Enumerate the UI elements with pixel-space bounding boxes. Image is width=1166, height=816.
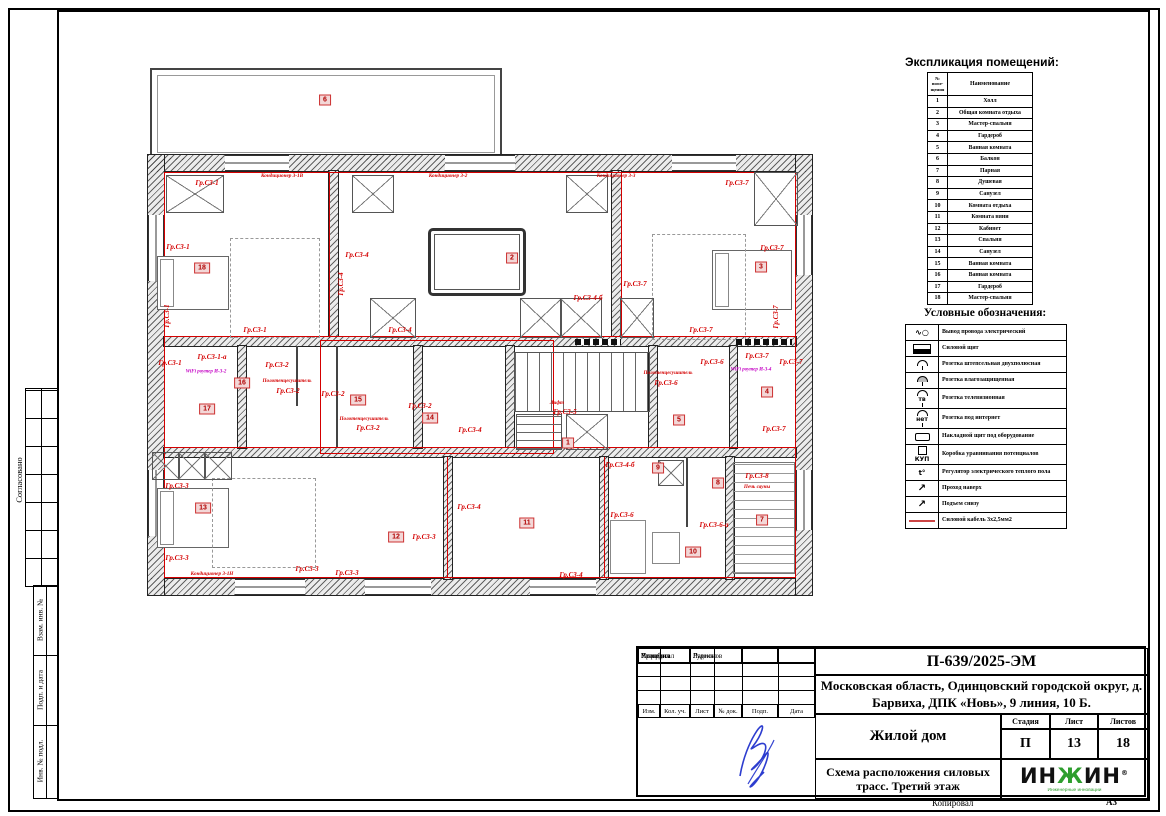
group-label: Гр.С3-3 bbox=[412, 533, 435, 541]
legend-label: Проход наверх bbox=[939, 481, 1066, 496]
room-name-cell: Общая комната отдыха bbox=[948, 108, 1032, 119]
group-label: Гр.С3-3 bbox=[165, 554, 188, 562]
group-label: WiFi роутер И-3-4 bbox=[731, 368, 772, 373]
room-name-cell: Гардероб bbox=[948, 131, 1032, 142]
stamp-column-header: Лист bbox=[690, 704, 714, 718]
table-row: 4 Гардероб bbox=[928, 130, 1032, 142]
room-number-cell: 12 bbox=[928, 224, 948, 235]
room-number: 16 bbox=[234, 378, 250, 389]
table-row: 2 Общая комната отдыха bbox=[928, 107, 1032, 119]
window bbox=[445, 155, 515, 171]
logo-text: ИНЖИН® bbox=[1020, 766, 1129, 787]
cable-trace bbox=[164, 577, 796, 578]
table-row: 1 Холл bbox=[928, 95, 1032, 107]
window bbox=[365, 579, 431, 595]
legend-symbol-icon: КУП bbox=[906, 445, 939, 464]
table-row: 3 Мастер-спальня bbox=[928, 118, 1032, 130]
company-logo: ИНЖИН® Инженерные инновации bbox=[1001, 759, 1148, 799]
role-cell bbox=[638, 648, 690, 664]
legend-title: Условные обозначения: bbox=[905, 307, 1065, 319]
room-number-cell: 16 bbox=[928, 270, 948, 281]
legend-row: тв Розетка телевизионная bbox=[906, 388, 1066, 408]
group-label: Гр.С3-5 bbox=[553, 408, 576, 416]
sheets-header: Листов bbox=[1098, 714, 1148, 729]
group-label: Гр.С3-3 bbox=[335, 569, 358, 577]
project-address: Московская область, Одинцовский городско… bbox=[815, 675, 1148, 714]
legend-row: ↗ Подъем снизу bbox=[906, 496, 1066, 512]
legend-row: Силовой щит bbox=[906, 340, 1066, 356]
room-name-cell: Спальня bbox=[948, 235, 1032, 246]
cable-trace bbox=[329, 172, 330, 336]
group-label: Гр.С3-6 bbox=[610, 511, 633, 519]
group-label: Гр.С3-1 bbox=[158, 359, 181, 367]
wardrobe bbox=[560, 298, 602, 338]
cable-trace bbox=[164, 172, 796, 173]
legend-label: Розетка влагозащищенная bbox=[939, 373, 1066, 388]
drawing-sheet: { "left_margin": { "agreed": "Согласован… bbox=[0, 0, 1166, 816]
wall bbox=[444, 457, 452, 579]
group-label: Гр.С3-2 bbox=[265, 361, 288, 369]
cable-trace bbox=[447, 457, 448, 577]
group-label: Гр.С3-6-а bbox=[699, 521, 728, 529]
room-number: 6 bbox=[319, 95, 331, 106]
room-number-cell: 18 bbox=[928, 293, 948, 304]
room-number-cell: 14 bbox=[928, 247, 948, 258]
legend-row: КУП Коробка уравнивания потенциалов bbox=[906, 444, 1066, 464]
legend-label: Розетка под интернет bbox=[939, 409, 1066, 428]
room-name-cell: Парная bbox=[948, 166, 1032, 177]
group-label: Гр.С3-4-б bbox=[605, 461, 634, 469]
group-label: Гр.С3-6 bbox=[700, 358, 723, 366]
group-label: Гр.С3-1 bbox=[166, 243, 189, 251]
explication-title: Экспликация помещений: bbox=[905, 55, 1059, 69]
divider bbox=[33, 655, 57, 656]
group-label: Полотенцесушитель bbox=[263, 378, 312, 384]
room-name-cell: Холл bbox=[948, 96, 1032, 107]
wall bbox=[238, 346, 246, 448]
table-row: 13 Спальня bbox=[928, 234, 1032, 246]
room-name-cell: Ванная комната bbox=[948, 258, 1032, 269]
object-name: Жилой дом bbox=[815, 714, 1001, 759]
legend-symbol-icon: тв bbox=[906, 389, 939, 408]
group-label: Полотенцесушитель bbox=[644, 370, 693, 376]
room-number-cell: 6 bbox=[928, 154, 948, 165]
room-number: 15 bbox=[350, 395, 366, 406]
stairs bbox=[516, 414, 562, 450]
legend-symbol-icon bbox=[906, 357, 939, 372]
logo-subtitle: Инженерные инновации bbox=[1048, 788, 1102, 793]
legend-label: Накладной щит под оборудование bbox=[939, 429, 1066, 444]
table-row: 6 Балкон bbox=[928, 153, 1032, 165]
legend-symbol-icon: ∿○ bbox=[906, 325, 939, 340]
signature-cell bbox=[742, 648, 778, 664]
legend-label: Коробка уравнивания потенциалов bbox=[939, 445, 1066, 464]
window bbox=[672, 155, 736, 171]
room-number: 13 bbox=[195, 503, 211, 514]
balcony-outline bbox=[150, 68, 502, 160]
group-label: Гр.С3-4 bbox=[457, 503, 480, 511]
drawing-name: Схема расположения силовых трасс. Третий… bbox=[815, 759, 1001, 799]
legend-symbol-icon: ↗ bbox=[906, 497, 939, 512]
group-label: Гр.С3-4 bbox=[559, 571, 582, 579]
legend-label: Регулятор электрического теплого пола bbox=[939, 465, 1066, 480]
legend-rows: ∿○ Вывод провода электрический Силовой щ… bbox=[906, 325, 1066, 528]
group-label: Лифт bbox=[550, 400, 564, 406]
room-number-cell: 8 bbox=[928, 177, 948, 188]
table-row: 11 Комната няни bbox=[928, 211, 1032, 223]
wardrobe bbox=[204, 452, 232, 480]
left-margin-table bbox=[25, 388, 59, 587]
group-label: Полотенцесушитель bbox=[340, 416, 389, 422]
wardrobe bbox=[152, 452, 180, 480]
signature bbox=[726, 710, 790, 794]
room-name-cell: Санузел bbox=[948, 189, 1032, 200]
window bbox=[796, 470, 812, 530]
wall bbox=[730, 346, 737, 448]
room-number: 1 bbox=[562, 438, 574, 449]
room-number: 7 bbox=[756, 515, 768, 526]
stamp-column-header: Кол. уч. bbox=[660, 704, 690, 718]
table bbox=[652, 532, 680, 564]
room-number: 12 bbox=[388, 532, 404, 543]
group-label: WiFi роутер И-3-2 bbox=[186, 370, 227, 375]
group-label: Гр.С3-3 bbox=[295, 565, 318, 573]
legend-row: нет Розетка под интернет bbox=[906, 408, 1066, 428]
group-label: Гр.С3-1-а bbox=[197, 353, 226, 361]
partition bbox=[296, 346, 298, 406]
group-label: Гр.С3-4 bbox=[337, 272, 345, 295]
table-row: 17 Гардероб bbox=[928, 281, 1032, 293]
legend-row: ∿○ Вывод провода электрический bbox=[906, 325, 1066, 340]
table-row: 15 Ванная комната bbox=[928, 257, 1032, 269]
room-name-cell: Ванная комната bbox=[948, 270, 1032, 281]
room-number-cell: 1 bbox=[928, 96, 948, 107]
group-label: Гр.С3-7 bbox=[745, 352, 768, 360]
legend-symbol-icon bbox=[906, 341, 939, 356]
table-row: 5 Ванная комната bbox=[928, 141, 1032, 153]
vzam-inv-label: Взам. инв. № bbox=[36, 599, 45, 641]
name-cell bbox=[690, 648, 742, 664]
format-label: А3 bbox=[1106, 797, 1117, 807]
room-number-cell: 13 bbox=[928, 235, 948, 246]
room-number: 5 bbox=[673, 415, 685, 426]
group-label: Гр.С3-7 bbox=[725, 179, 748, 187]
legend-row: Силовой кабель 3х2,5мм2 bbox=[906, 512, 1066, 528]
group-label: Гр.С3-7 bbox=[762, 425, 785, 433]
date-cell bbox=[778, 648, 815, 664]
room-name-cell: Кабинет bbox=[948, 224, 1032, 235]
group-label: Гр.С3-6 bbox=[654, 379, 677, 387]
room-number-cell: 3 bbox=[928, 119, 948, 130]
room-number-cell: 2 bbox=[928, 108, 948, 119]
wardrobe bbox=[620, 298, 654, 338]
legend-label: Подъем снизу bbox=[939, 497, 1066, 512]
room-number-cell: 9 bbox=[928, 189, 948, 200]
sheets-value: 18 bbox=[1098, 729, 1148, 759]
rug bbox=[652, 234, 746, 340]
room-name-cell: Гардероб bbox=[948, 282, 1032, 293]
group-label: Гр.С3-8 bbox=[745, 472, 768, 480]
agreed-label: Согласовано bbox=[14, 457, 24, 502]
group-label: Кондиционер 3-2 bbox=[429, 173, 468, 179]
table-row: 14 Санузел bbox=[928, 246, 1032, 258]
legend-label: Розетка штепсельная двухполюсная bbox=[939, 357, 1066, 372]
electric-panel bbox=[575, 339, 621, 345]
group-label: Гр.С3-4-б bbox=[573, 294, 602, 302]
room-number-cell: 4 bbox=[928, 131, 948, 142]
room-number: 14 bbox=[422, 413, 438, 424]
inv-podl-label: Инв. № подл. bbox=[36, 740, 45, 783]
group-label: Печь сауны bbox=[744, 484, 770, 490]
partition bbox=[686, 457, 688, 527]
group-label: Гр.С3-7 bbox=[760, 244, 783, 252]
legend-symbol-icon: ↗ bbox=[906, 481, 939, 496]
copied-label: Копировал bbox=[932, 798, 973, 808]
window bbox=[530, 579, 596, 595]
wall bbox=[329, 171, 338, 337]
wardrobe bbox=[178, 452, 206, 480]
table-row: 7 Парная bbox=[928, 165, 1032, 177]
bed bbox=[157, 256, 229, 310]
rug bbox=[212, 478, 316, 568]
group-label: Гр.С3-7 bbox=[772, 305, 780, 328]
room-number: 8 bbox=[712, 478, 724, 489]
rug bbox=[230, 238, 320, 338]
table-row: 18 Мастер-спальня bbox=[928, 292, 1032, 304]
legend-symbol-icon: t° bbox=[906, 465, 939, 480]
group-label: Гр.С3-4 bbox=[345, 251, 368, 259]
table-row: 10 Комната отдыха bbox=[928, 199, 1032, 211]
wardrobe bbox=[352, 175, 394, 213]
legend-table: ∿○ Вывод провода электрический Силовой щ… bbox=[905, 324, 1067, 529]
wardrobe bbox=[566, 175, 608, 213]
group-label: Кондиционер 3-1Н bbox=[191, 571, 234, 577]
room-number: 10 bbox=[685, 547, 701, 558]
room-name-cell: Комната няни bbox=[948, 212, 1032, 223]
stamp-role-row bbox=[638, 648, 815, 664]
group-label: Кондиционер 3-3 bbox=[597, 173, 636, 179]
divider bbox=[33, 725, 57, 726]
legend-symbol-icon bbox=[906, 513, 939, 528]
room-name-cell: Ванная комната bbox=[948, 142, 1032, 153]
room-name-cell: Балкон bbox=[948, 154, 1032, 165]
podp-data-label: Подп. и дата bbox=[36, 670, 45, 710]
legend-row: Накладной щит под оборудование bbox=[906, 428, 1066, 444]
group-label: Гр.С3-7 bbox=[689, 326, 712, 334]
legend-label: Розетка телевизионная bbox=[939, 389, 1066, 408]
stairs bbox=[514, 352, 650, 412]
group-label: Гр.С3-1 bbox=[243, 326, 266, 334]
group-label: Гр.С3-1 bbox=[163, 304, 171, 327]
window bbox=[235, 579, 305, 595]
document-number: П-639/2025-ЭМ bbox=[815, 648, 1148, 675]
group-label: Гр.С3-2 bbox=[356, 424, 379, 432]
room-name-cell: Мастер-спальня bbox=[948, 119, 1032, 130]
group-label: Гр.С3-4 bbox=[388, 326, 411, 334]
legend-label: Вывод провода электрический bbox=[939, 325, 1066, 340]
table-row: 12 Кабинет bbox=[928, 223, 1032, 235]
group-label: Гр.С3-7 bbox=[779, 358, 802, 366]
legend-symbol-icon bbox=[906, 373, 939, 388]
title-block: Изм.Кол. уч.Лист№ док.Подп.Дата Разработ… bbox=[636, 646, 1146, 797]
legend-symbol-icon bbox=[906, 429, 939, 444]
room-name-cell: Комната отдыха bbox=[948, 200, 1032, 211]
room-name-cell: Санузел bbox=[948, 247, 1032, 258]
stamp-column-header: Изм. bbox=[638, 704, 660, 718]
cable-trace bbox=[795, 172, 796, 577]
legend-row: Розетка штепсельная двухполюсная bbox=[906, 356, 1066, 372]
room-number-cell: 10 bbox=[928, 200, 948, 211]
legend-row: t° Регулятор электрического теплого пола bbox=[906, 464, 1066, 480]
explication-header: № поме- щения Наименование bbox=[928, 73, 1032, 95]
legend-symbol-icon: нет bbox=[906, 409, 939, 428]
legend-label: Силовой щит bbox=[939, 341, 1066, 356]
window bbox=[796, 215, 812, 275]
col-name-header: Наименование bbox=[948, 73, 1032, 95]
group-label: Гр.С3-2 bbox=[276, 387, 299, 395]
sheet-header: Лист bbox=[1050, 714, 1098, 729]
room-name-cell: Душевая bbox=[948, 177, 1032, 188]
room-number-cell: 7 bbox=[928, 166, 948, 177]
group-label: Гр.С3-2 bbox=[321, 390, 344, 398]
wardrobe bbox=[520, 298, 562, 338]
explication-rows: 1 Холл 2 Общая комната отдыха 3 Мастер-с… bbox=[928, 95, 1032, 304]
stage-value: П bbox=[1001, 729, 1050, 759]
room-number: 9 bbox=[652, 463, 664, 474]
wardrobe bbox=[754, 172, 798, 226]
group-label: Гр.С3-7 bbox=[623, 280, 646, 288]
room-number-cell: 17 bbox=[928, 282, 948, 293]
room-number-cell: 15 bbox=[928, 258, 948, 269]
legend-row: Розетка влагозащищенная bbox=[906, 372, 1066, 388]
wall bbox=[649, 346, 657, 456]
group-label: Кондиционер 3-1В bbox=[261, 173, 303, 179]
group-label: Гр.С3-4 bbox=[458, 426, 481, 434]
room-number: 2 bbox=[506, 253, 518, 264]
table-row: 8 Душевая bbox=[928, 176, 1032, 188]
group-label: Гр.С3-3 bbox=[165, 482, 188, 490]
electric-panel bbox=[736, 339, 792, 345]
room-number: 11 bbox=[519, 518, 534, 529]
legend-row: ↗ Проход наверх bbox=[906, 480, 1066, 496]
room-number-cell: 11 bbox=[928, 212, 948, 223]
room-number: 17 bbox=[199, 404, 215, 415]
stage-header: Стадия bbox=[1001, 714, 1050, 729]
col-number-header: № поме- щения bbox=[928, 73, 948, 95]
room-number: 3 bbox=[755, 262, 767, 273]
explication-table: № поме- щения Наименование 1 Холл 2 Обща… bbox=[927, 72, 1033, 305]
table-row: 16 Ванная комната bbox=[928, 269, 1032, 281]
room-number: 4 bbox=[761, 387, 773, 398]
sofa bbox=[610, 520, 646, 574]
table-row: 9 Санузел bbox=[928, 188, 1032, 200]
cable-trace bbox=[604, 457, 605, 577]
legend-label: Силовой кабель 3х2,5мм2 bbox=[939, 513, 1066, 528]
window bbox=[225, 155, 289, 171]
room-number: 18 bbox=[194, 263, 210, 274]
room-number-cell: 5 bbox=[928, 142, 948, 153]
sheet-value: 13 bbox=[1050, 729, 1098, 759]
group-label: Гр.С3-1 bbox=[195, 179, 218, 187]
group-label: Гр.С3-2 bbox=[408, 402, 431, 410]
room-name-cell: Мастер-спальня bbox=[948, 293, 1032, 304]
